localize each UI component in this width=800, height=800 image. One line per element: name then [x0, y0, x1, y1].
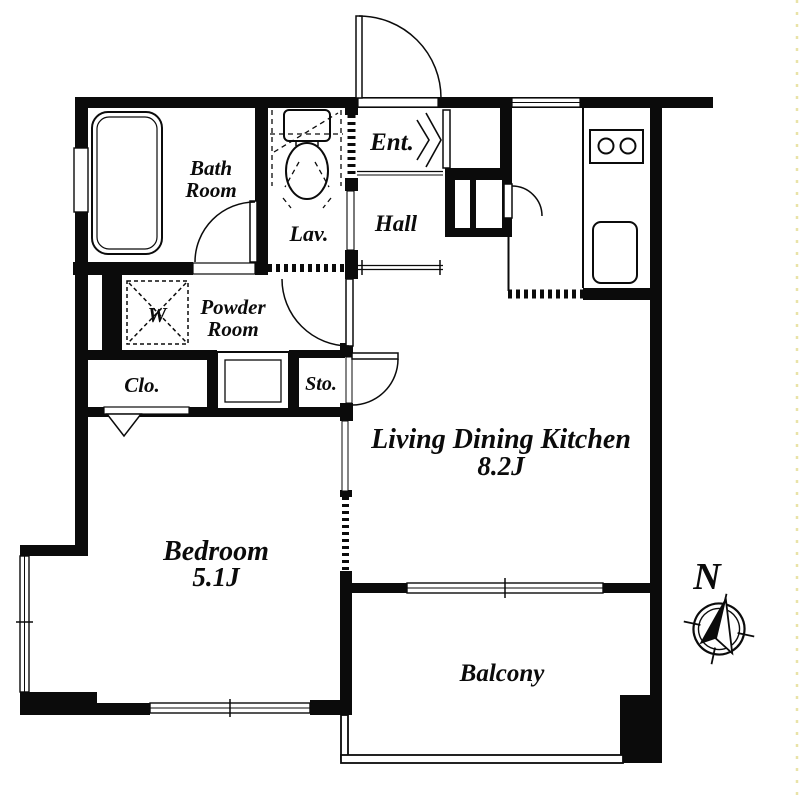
- toilet: [284, 110, 330, 199]
- wall: [352, 583, 407, 593]
- wall: [500, 97, 512, 173]
- wall: [102, 273, 122, 352]
- wall: [340, 571, 352, 579]
- storage-door-opening: [346, 357, 352, 403]
- floorplan-page: N Bath Room Lav. Ent. Hall Powder Room W…: [0, 0, 800, 800]
- kitchen-window: [512, 98, 580, 107]
- wall: [340, 577, 352, 715]
- balcony-label: Balcony: [459, 660, 546, 687]
- vanity-unit: [217, 352, 289, 409]
- stove-burners: [590, 130, 643, 163]
- wall: [445, 228, 512, 237]
- entrance-threshold: [358, 98, 438, 107]
- wall: [290, 350, 345, 358]
- bath-room-label-line1: Bath: [189, 156, 232, 180]
- wall: [75, 350, 207, 360]
- hall-label: Hall: [374, 211, 418, 236]
- bath-door-threshold: [193, 263, 255, 274]
- wall: [97, 703, 150, 715]
- powder-room-label-line1: Powder: [199, 295, 266, 319]
- wall: [289, 350, 299, 417]
- wall: [73, 262, 193, 275]
- balcony-pillar: [620, 695, 652, 763]
- entrance-label: Ent.: [369, 129, 414, 156]
- wall: [445, 173, 455, 237]
- ldk-area-label: 8.2J: [477, 451, 526, 481]
- wall: [470, 180, 476, 228]
- lavatory-label: Lav.: [289, 221, 329, 246]
- washer-label: W: [148, 303, 168, 327]
- bath-window: [74, 148, 88, 212]
- wall: [255, 262, 268, 275]
- wall: [20, 692, 97, 715]
- kitchen-sink: [593, 222, 637, 283]
- bedroom-ldk-partition: [342, 421, 348, 491]
- wall: [650, 97, 662, 763]
- wall: [603, 583, 650, 593]
- compass-north-label: N: [692, 556, 722, 598]
- closet-label: Clo.: [124, 373, 160, 397]
- bathtub: [92, 112, 162, 254]
- wall: [345, 97, 358, 115]
- floorplan-drawing: N Bath Room Lav. Ent. Hall Powder Room W…: [0, 0, 800, 800]
- closet-opening: [104, 407, 189, 414]
- powder-room-label-line2: Room: [206, 317, 258, 341]
- wall: [445, 168, 512, 180]
- wall: [345, 250, 358, 279]
- hall-lavatory-partition: [347, 191, 354, 250]
- wall: [75, 97, 88, 148]
- wall: [583, 288, 661, 300]
- bath-room-label-line2: Room: [184, 178, 236, 202]
- wall: [20, 545, 86, 556]
- wall: [207, 350, 217, 417]
- storage-label: Sto.: [305, 373, 337, 395]
- bedroom-area-label: 5.1J: [192, 562, 241, 592]
- wall: [345, 178, 358, 191]
